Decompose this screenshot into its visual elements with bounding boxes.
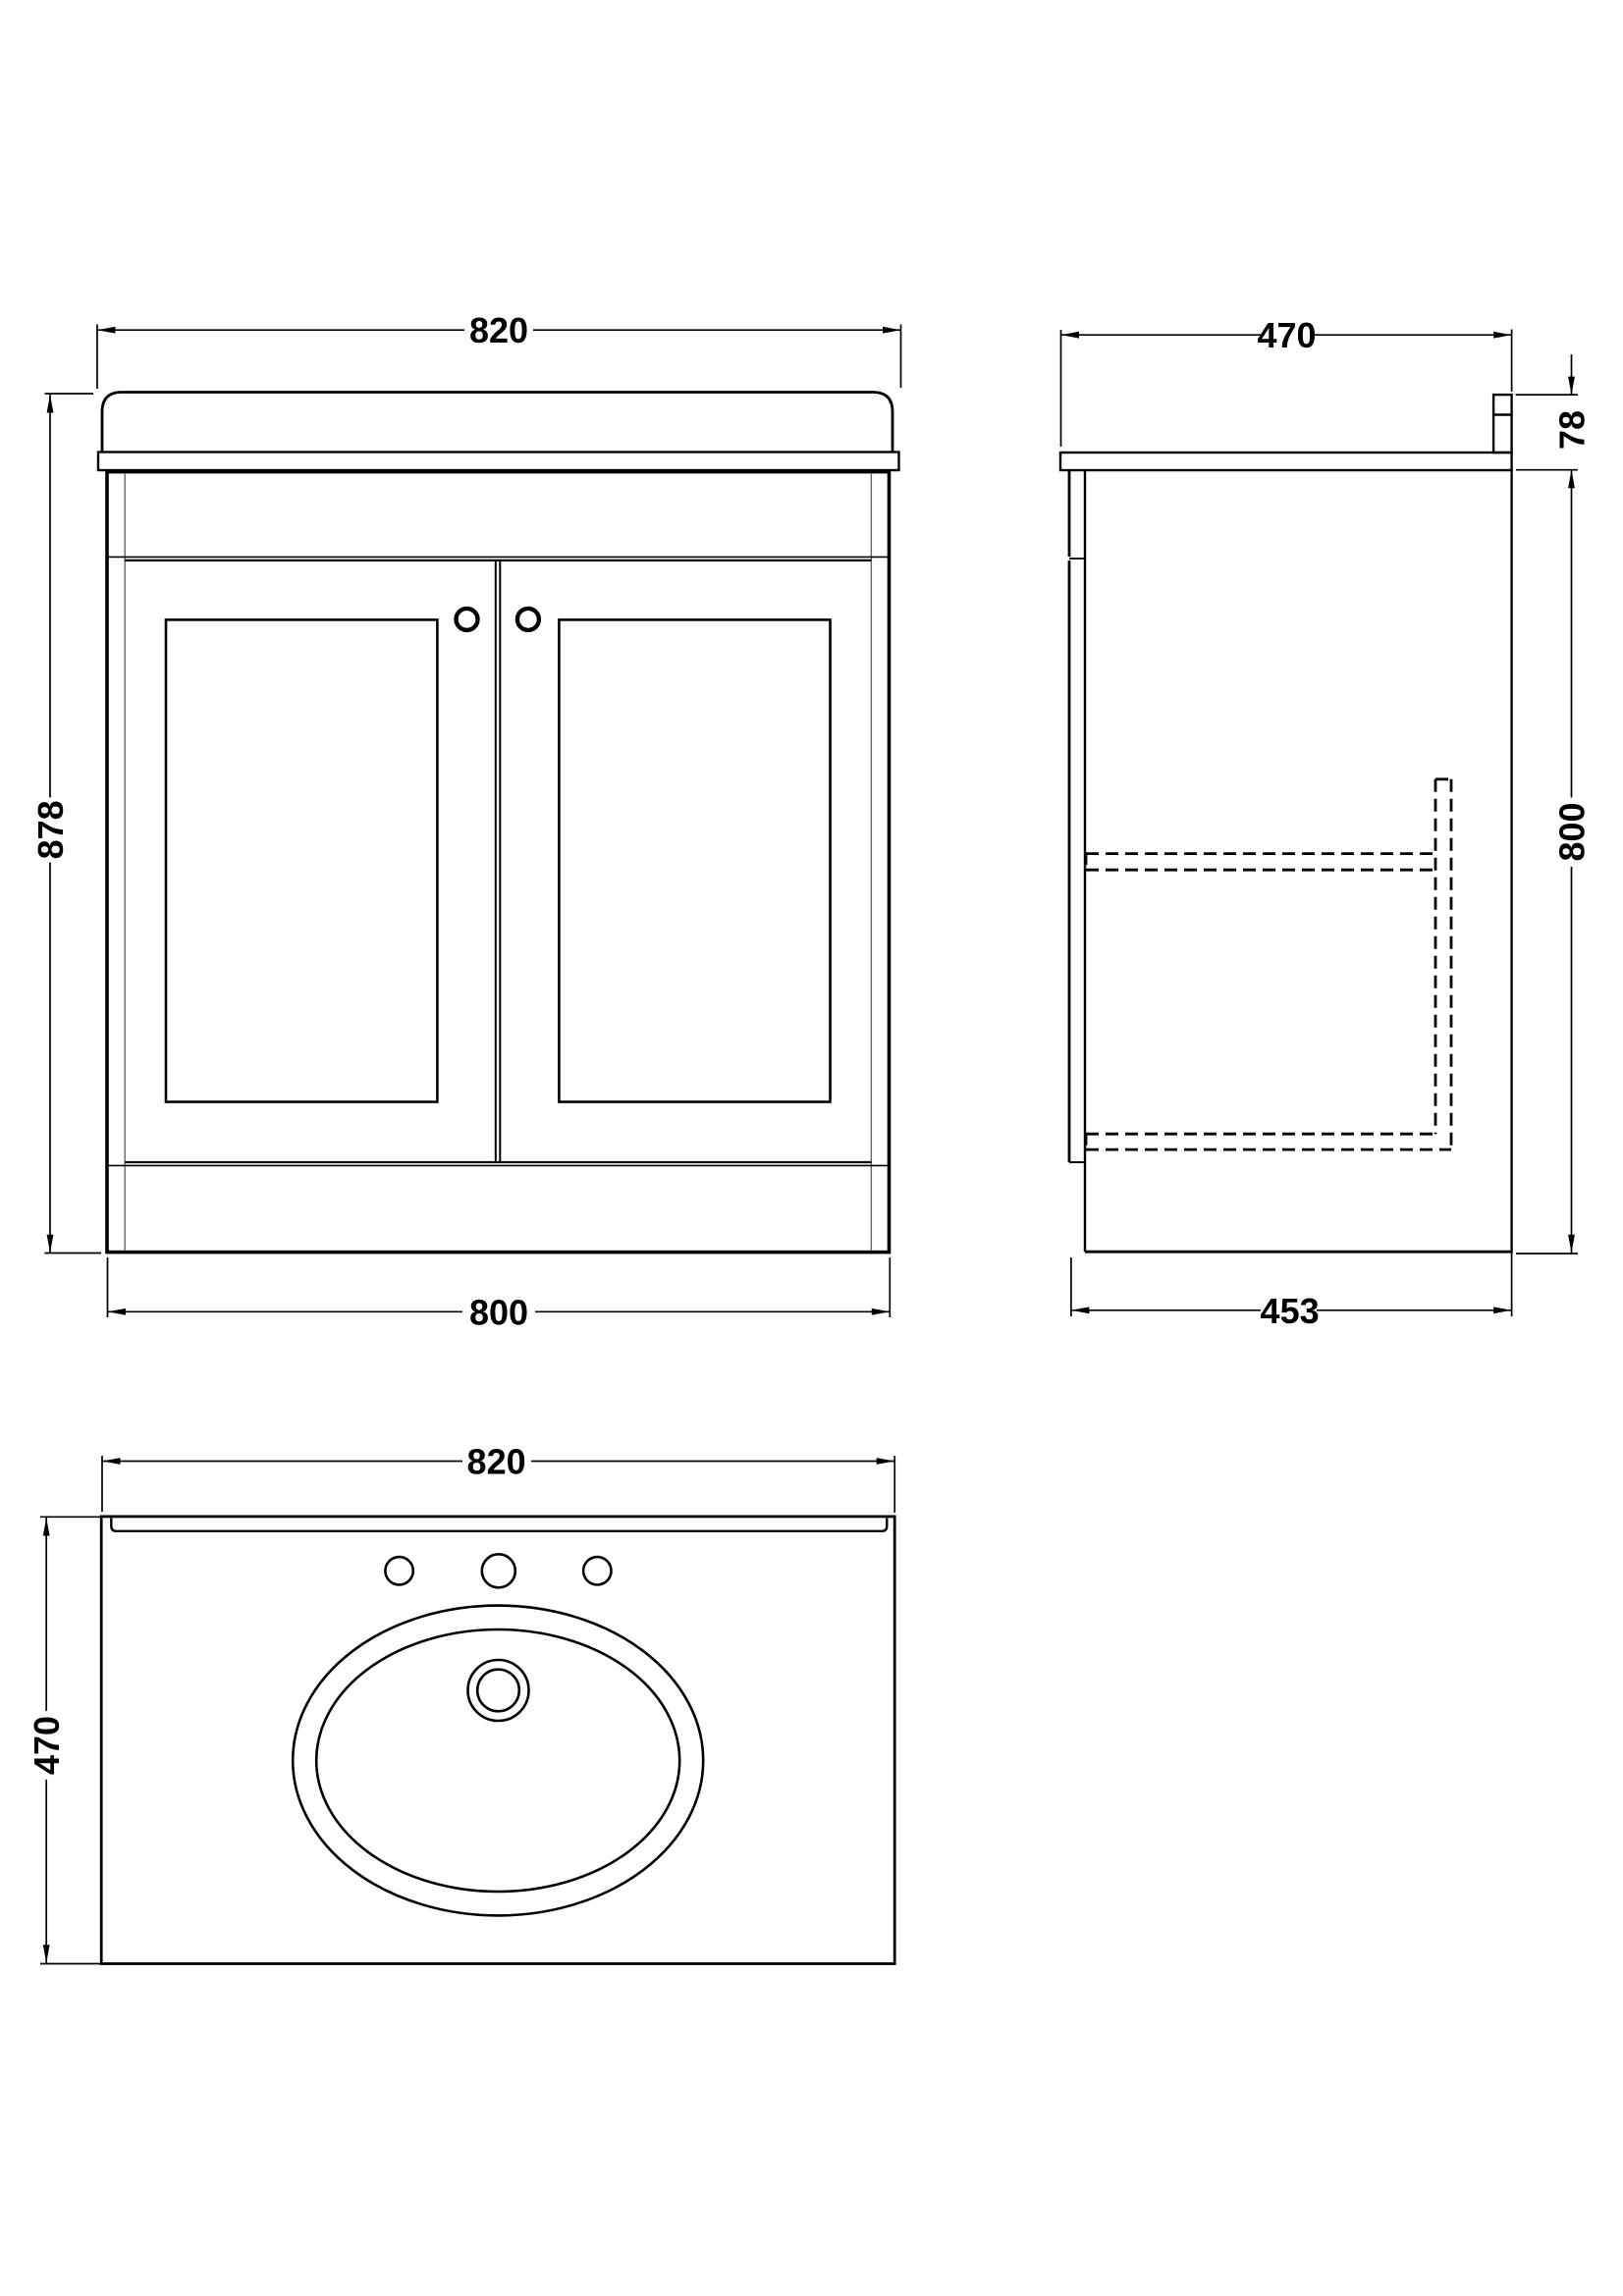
svg-text:820: 820 [469, 310, 528, 350]
svg-text:800: 800 [469, 1292, 528, 1332]
svg-text:800: 800 [1552, 802, 1593, 861]
svg-text:820: 820 [467, 1442, 526, 1482]
svg-text:470: 470 [1257, 315, 1316, 355]
svg-text:878: 878 [30, 800, 71, 859]
svg-text:78: 78 [1552, 410, 1593, 450]
svg-text:453: 453 [1261, 1291, 1320, 1331]
svg-text:470: 470 [27, 1716, 67, 1775]
